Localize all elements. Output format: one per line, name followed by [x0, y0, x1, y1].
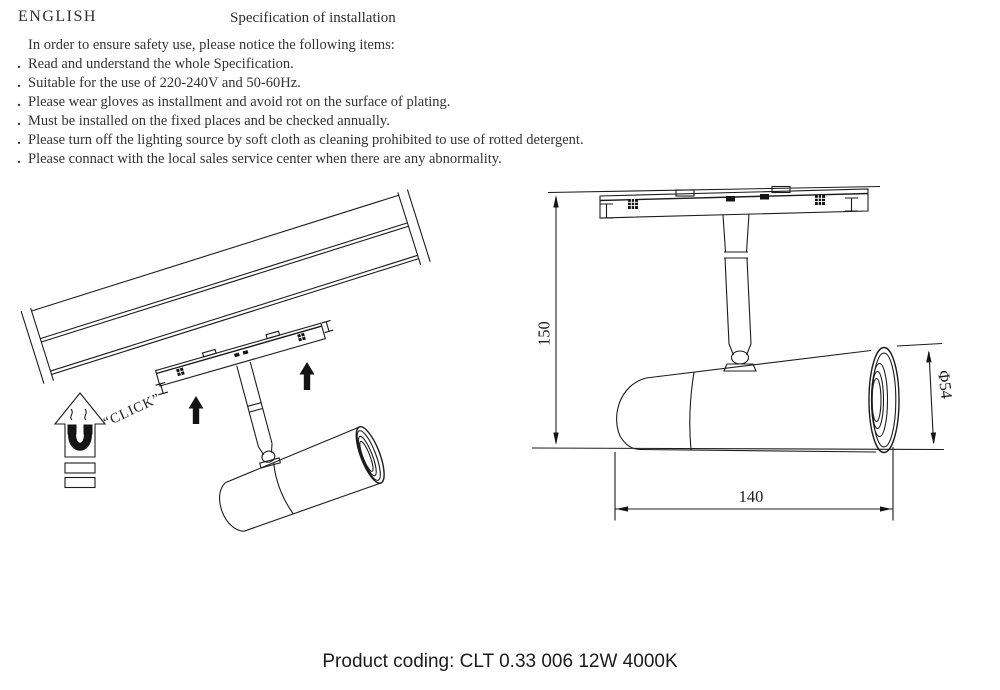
installation-diagrams: “CLICK” [0, 0, 1000, 690]
spotlight-stem [723, 214, 756, 371]
spec-sheet-page: ENGLISH Specification of installation In… [0, 0, 1000, 690]
dimension-diameter-54: Φ54 [897, 344, 956, 445]
track-rail [21, 189, 430, 383]
magnet-arrow-icon [55, 393, 105, 488]
spotlight-body [211, 424, 389, 540]
dimension-diameter-label: Φ54 [934, 369, 956, 400]
dimension-height-150: 150 [535, 195, 559, 445]
product-coding: Product coding: CLT 0.33 006 12W 4000K [0, 651, 1000, 673]
spotlight-body [617, 348, 899, 453]
spotlight-stem [234, 361, 280, 468]
end-clip-icon [845, 198, 858, 211]
up-arrow-icon [300, 362, 315, 390]
click-label: “CLICK” [101, 391, 163, 431]
baseline [532, 448, 944, 450]
right-dimension-diagram: 150 Φ54 140 [532, 187, 956, 521]
end-clip-icon [600, 204, 613, 218]
left-installation-diagram: “CLICK” [21, 189, 430, 539]
up-arrow-icon [189, 396, 204, 424]
dimension-140-label: 140 [739, 487, 764, 506]
dimension-length-140: 140 [615, 447, 893, 521]
dimension-150-label: 150 [535, 321, 554, 346]
